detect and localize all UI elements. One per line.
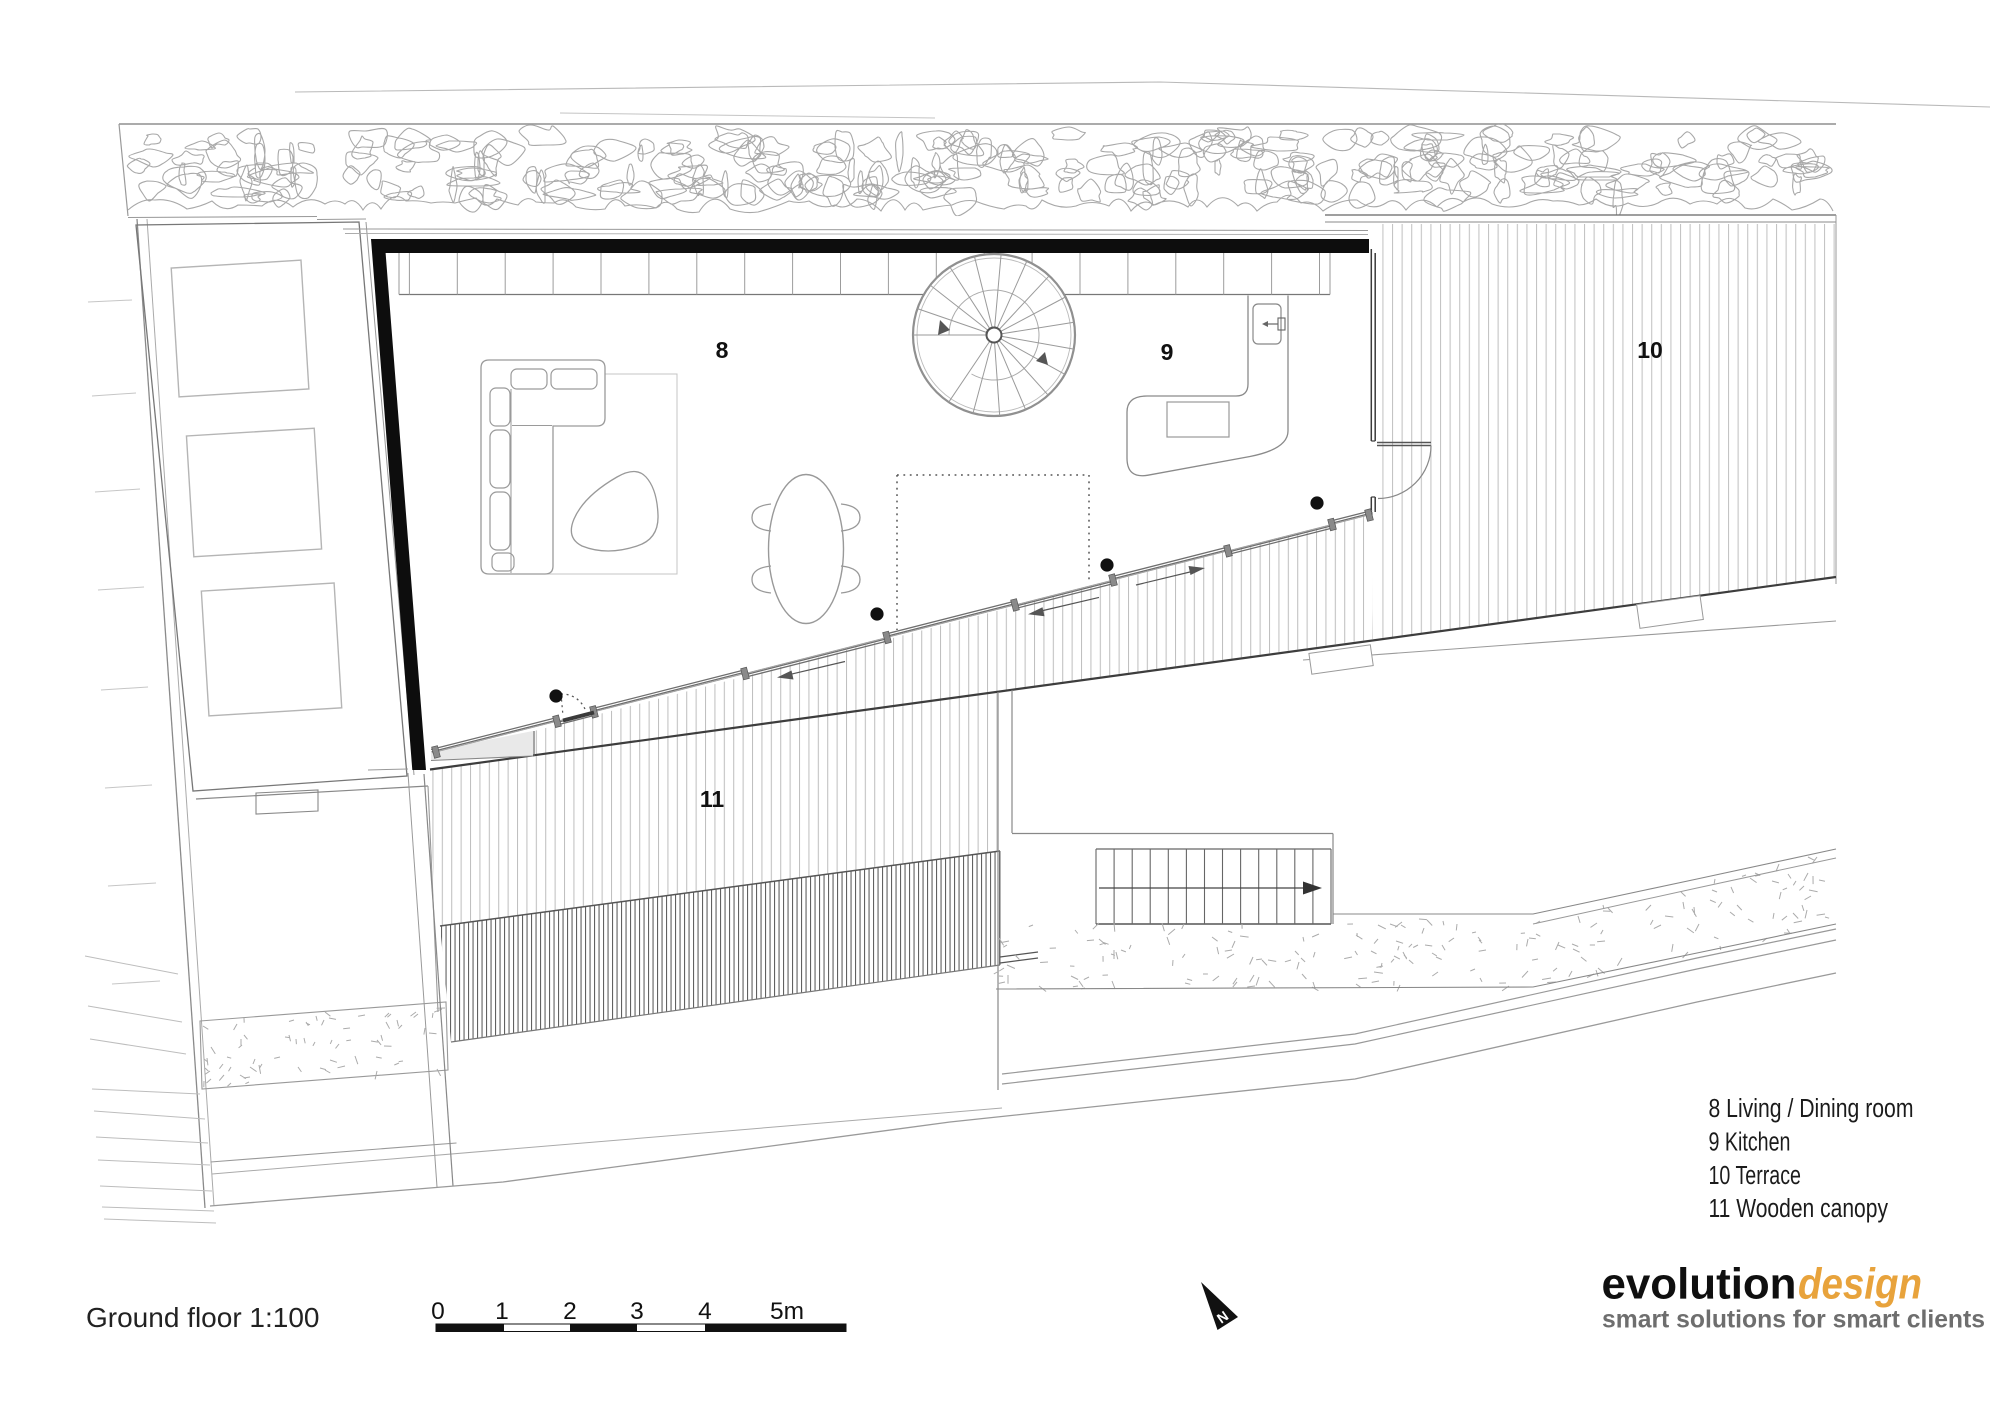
svg-text:11 Wooden canopy: 11 Wooden canopy	[1709, 1195, 1889, 1223]
svg-text:evolution: evolution	[1602, 1261, 1797, 1309]
svg-text:Ground floor 1:100: Ground floor 1:100	[86, 1302, 320, 1333]
svg-text:8 Living / Dining room: 8 Living / Dining room	[1709, 1095, 1914, 1123]
svg-text:4: 4	[698, 1298, 712, 1325]
svg-text:9 Kitchen: 9 Kitchen	[1709, 1129, 1791, 1157]
svg-text:design: design	[1798, 1261, 1922, 1309]
svg-text:8: 8	[716, 337, 729, 363]
svg-text:0: 0	[431, 1298, 445, 1325]
svg-text:11: 11	[700, 786, 725, 812]
svg-text:1: 1	[495, 1298, 509, 1325]
svg-text:10: 10	[1637, 337, 1663, 363]
svg-text:9: 9	[1161, 339, 1174, 365]
svg-text:2: 2	[563, 1298, 577, 1325]
svg-text:smart solutions for smart clie: smart solutions for smart clients	[1602, 1306, 1985, 1334]
svg-text:5m: 5m	[770, 1298, 804, 1325]
svg-text:10 Terrace: 10 Terrace	[1709, 1162, 1802, 1190]
svg-text:3: 3	[630, 1298, 644, 1325]
